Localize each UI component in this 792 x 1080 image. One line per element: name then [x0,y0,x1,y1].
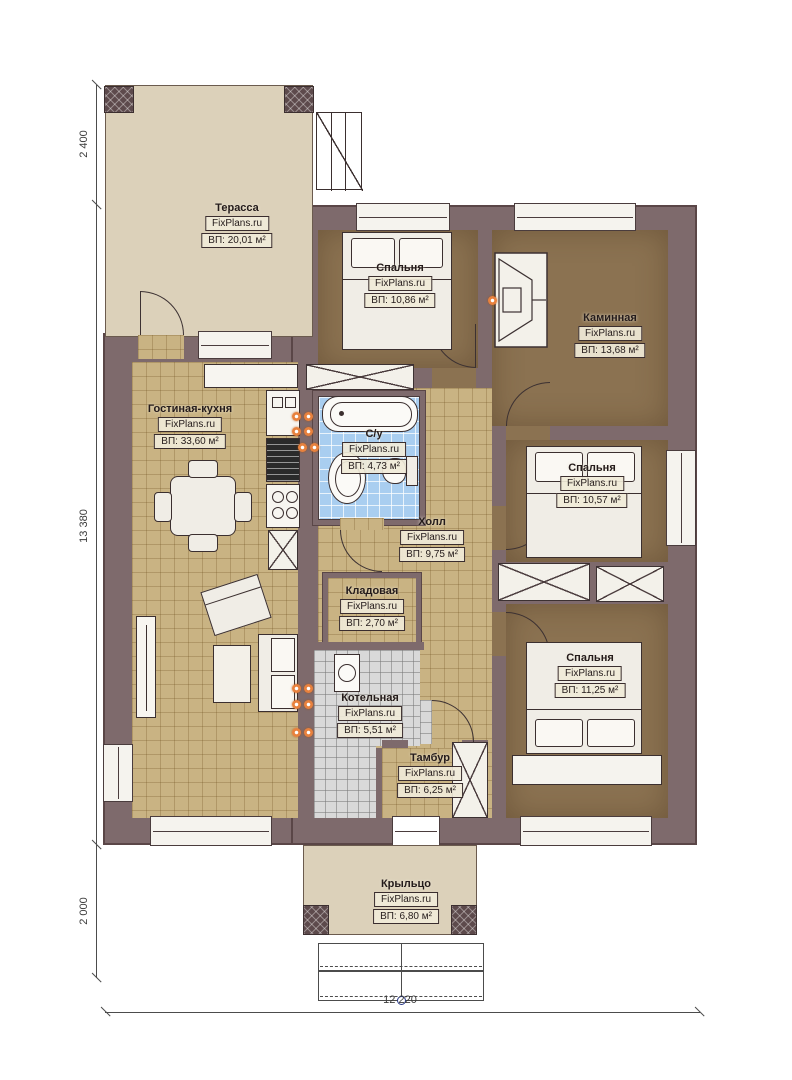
room-name: Спальня [568,462,616,474]
supply-marker [292,412,301,421]
terrace-door-leaf [140,291,141,335]
supply-marker [292,700,301,709]
supply-marker [488,296,497,305]
room-area: ВП: 6,80 м² [373,909,439,924]
supply-marker [310,443,319,452]
room-label-porch: Крыльцо FixPlans.ru ВП: 6,80 м² [373,878,439,924]
room-area: ВП: 6,25 м² [397,783,463,798]
dimension-label-2400: 2 400 [78,104,90,184]
boiler-floor-lower [314,746,376,818]
terrace-post [284,86,314,113]
supply-marker [292,728,301,737]
boiler-door-opening [420,700,432,744]
window-bedroom3 [520,816,652,846]
room-area: ВП: 5,51 м² [337,723,403,738]
room-label-bedroom1: Спальня FixPlans.ru ВП: 10,86 м² [364,262,435,308]
room-name: Кладовая [346,585,399,597]
porch-post [451,905,477,935]
supply-marker [304,684,313,693]
brand-tag: FixPlans.ru [340,599,404,614]
room-name: Спальня [376,262,424,274]
sofa [258,634,298,712]
stove [266,484,300,528]
brand-tag: FixPlans.ru [368,276,432,291]
tv-stand [136,616,156,718]
bedroom1-door-opening [432,368,476,388]
coffee-table [213,645,251,703]
brand-tag: FixPlans.ru [578,326,642,341]
kitchen-sink-unit [266,438,300,482]
room-label-vestibule: Тамбур FixPlans.ru ВП: 6,25 м² [397,752,463,798]
window-fireplace-room [514,203,636,231]
brand-tag: FixPlans.ru [158,417,222,432]
room-area: ВП: 11,25 м² [555,683,626,698]
dimension-line-bottom [105,1012,700,1013]
brand-tag: FixPlans.ru [400,530,464,545]
kitchen-cabinet [268,530,298,570]
pillow [535,719,583,747]
room-name: С/у [365,428,382,440]
supply-marker [292,684,301,693]
chair [234,492,252,522]
room-area: ВП: 10,86 м² [364,293,435,308]
room-area: ВП: 20,01 м² [201,233,272,248]
bathroom-door-opening [340,518,384,530]
wardrobe-2 [596,566,664,602]
dimension-label-13380: 13 380 [78,486,90,566]
pillow [587,719,635,747]
supply-marker [292,427,301,436]
entry-door-opening [392,816,440,846]
window-living-room [150,816,272,846]
room-name: Котельная [341,692,399,704]
fireplace-door-opening [506,426,550,440]
boiler-wall-top [312,642,424,650]
room-label-bedroom3: Спальня FixPlans.ru ВП: 11,25 м² [555,652,626,698]
room-name: Тамбур [410,752,450,764]
brand-tag: FixPlans.ru [338,706,402,721]
chair [188,534,218,552]
room-label-living: Гостиная-кухня FixPlans.ru ВП: 33,60 м² [148,403,232,449]
bathtub [322,396,418,432]
porch-post [303,905,329,935]
bedroom1-door-leaf [475,324,476,368]
vestibule-wall-top-a [382,740,408,748]
room-area: ВП: 13,68 м² [574,343,645,358]
terrace-door-opening [138,335,184,359]
bedroom3-door-opening [492,612,506,656]
brand-tag: FixPlans.ru [374,892,438,907]
window-bedroom2 [666,450,696,546]
supply-marker [304,412,313,421]
porch-step-centerline [401,943,402,1001]
chair [188,460,218,478]
brand-tag: FixPlans.ru [560,476,624,491]
window-terrace-wall [198,331,272,359]
brand-tag: FixPlans.ru [205,216,269,231]
room-label-terrace: Терасса FixPlans.ru ВП: 20,01 м² [201,202,272,248]
wardrobe-1 [498,563,590,601]
supply-marker [304,728,313,737]
room-name: Холл [418,516,446,528]
room-name: Гостиная-кухня [148,403,232,415]
dimension-label-12220: 12 220 [350,994,450,1006]
sofa-cushion [271,638,295,672]
room-label-boiler: Котельная FixPlans.ru ВП: 5,51 м² [337,692,403,738]
window-living-left [103,744,133,802]
terrace-stairs [316,112,362,190]
brand-tag: FixPlans.ru [342,442,406,457]
room-label-fireplace: Каминная FixPlans.ru ВП: 13,68 м² [574,312,645,358]
room-area: ВП: 10,57 м² [556,493,627,508]
room-label-pantry: Кладовая FixPlans.ru ВП: 2,70 м² [339,585,405,631]
dining-table [170,476,236,536]
supply-marker [304,427,313,436]
room-label-hall: Холл FixPlans.ru ВП: 9,75 м² [399,516,465,562]
brand-tag: FixPlans.ru [558,666,622,681]
fireplace [494,252,548,348]
room-name: Терасса [215,202,259,214]
floor-plan: Терасса FixPlans.ru ВП: 20,01 м² Спальня… [0,0,792,1080]
brand-tag: FixPlans.ru [398,766,462,781]
dimension-label-2000: 2 000 [78,871,90,951]
bedroom3-sill-cabinet [512,755,662,785]
room-area: ВП: 33,60 м² [154,434,225,449]
chair [154,492,172,522]
bedroom1-wardrobe [306,364,414,390]
terrace-post [104,86,134,113]
room-area: ВП: 4,73 м² [341,459,407,474]
bedroom2-door-opening [492,506,506,550]
room-area: ВП: 9,75 м² [399,547,465,562]
room-area: ВП: 2,70 м² [339,616,405,631]
supply-marker [304,700,313,709]
window-bedroom1 [356,203,450,231]
room-name: Спальня [566,652,614,664]
room-name: Каминная [583,312,637,324]
room-name: Крыльцо [381,878,431,890]
blanket-fold [527,709,641,710]
supply-marker [298,443,307,452]
boiler-unit [334,654,360,692]
room-label-bedroom2: Спальня FixPlans.ru ВП: 10,57 м² [556,462,627,508]
kitchen-counter [204,364,298,388]
room-label-bathroom: С/у FixPlans.ru ВП: 4,73 м² [341,428,407,474]
